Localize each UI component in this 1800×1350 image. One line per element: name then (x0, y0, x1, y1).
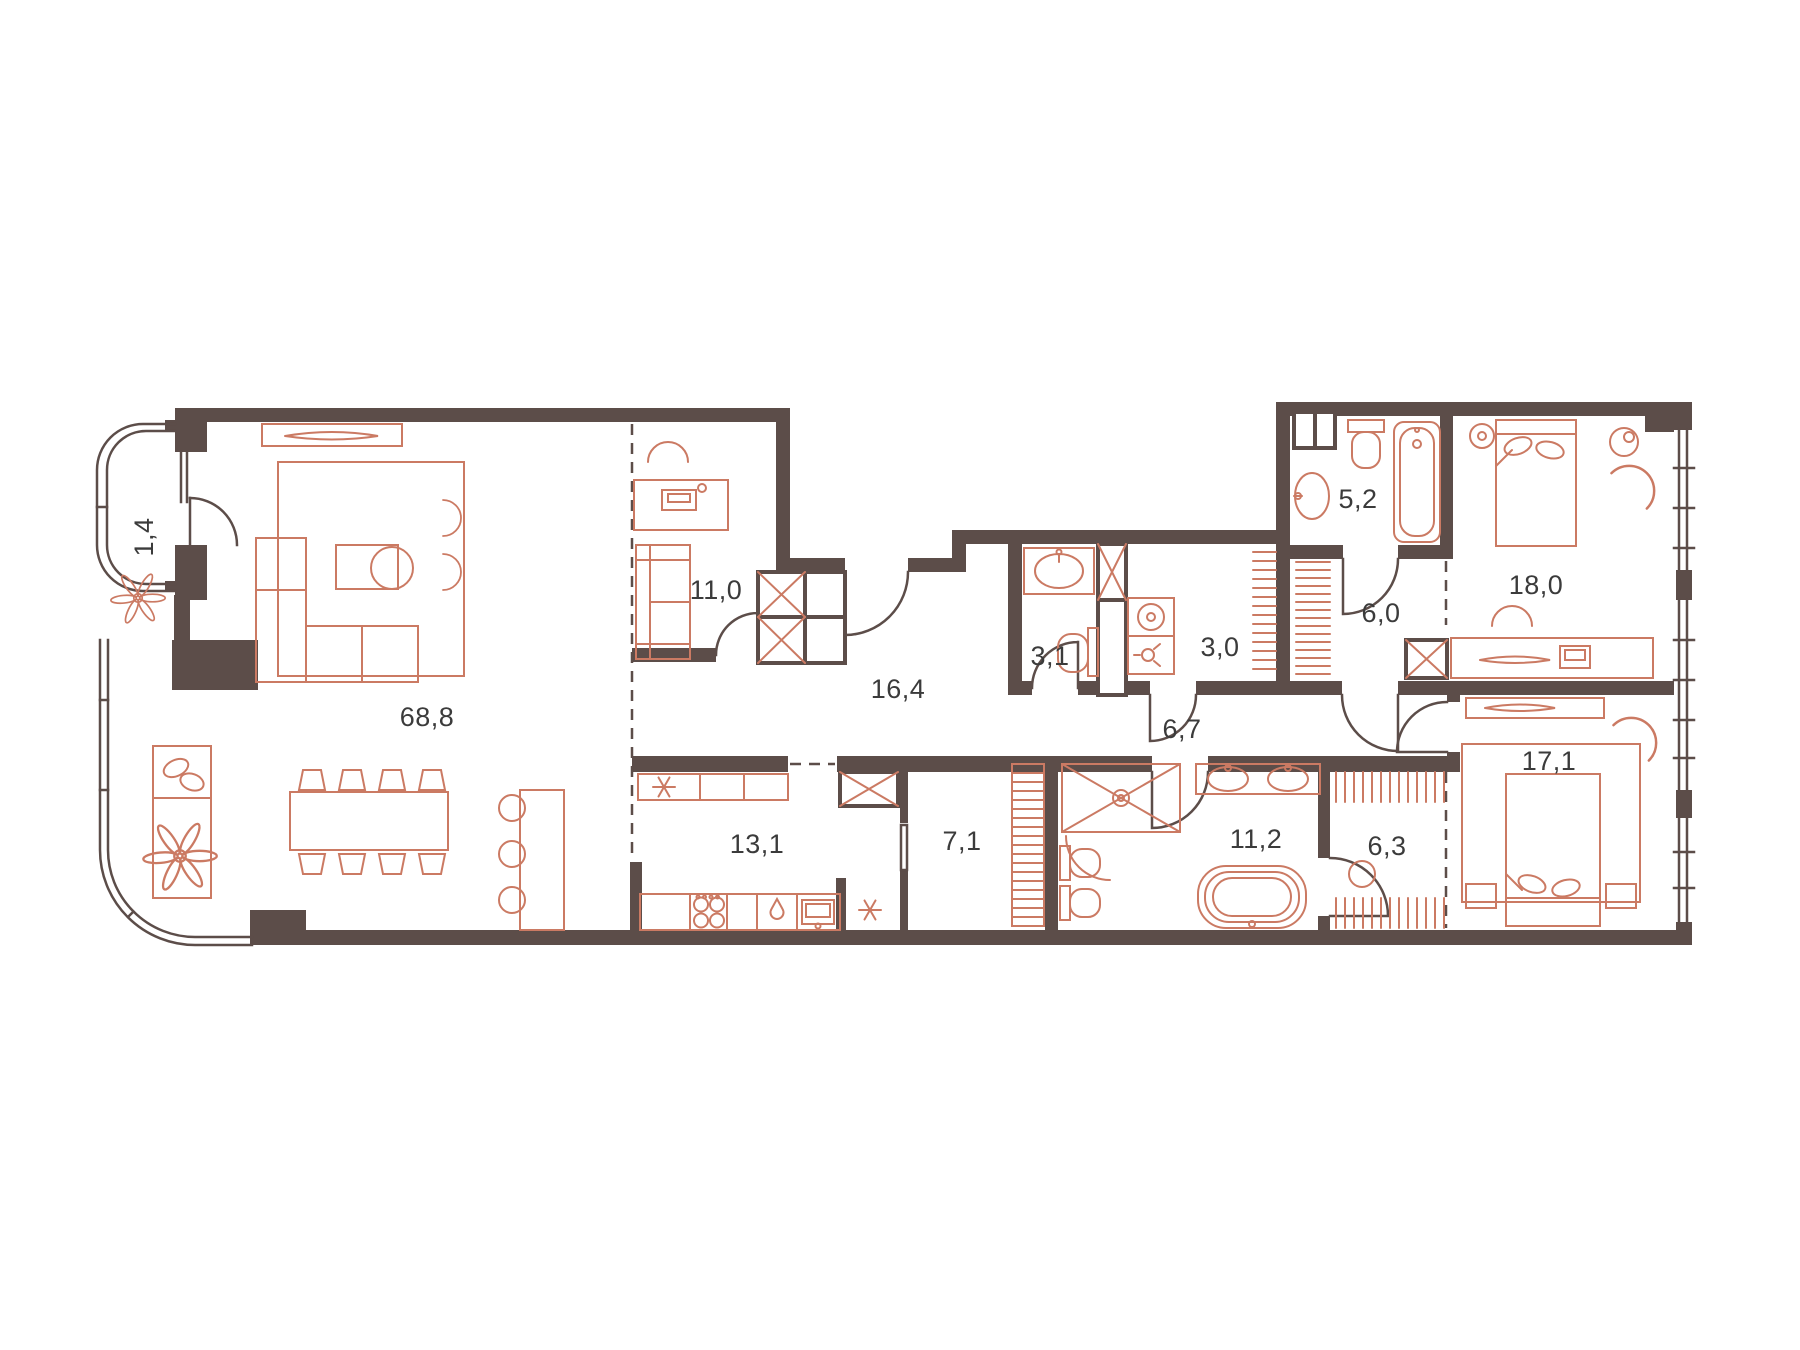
room-label-entrance-hall: 16,4 (871, 674, 926, 704)
room-label-corridor: 6,7 (1162, 714, 1201, 744)
floor-plan-page: 1,4 68,8 11,0 16,4 3,1 3,0 6,7 5,2 6,0 1… (0, 0, 1800, 1350)
hall-door (1342, 695, 1398, 751)
room-label-study: 11,0 (690, 575, 743, 605)
desk-chair (1492, 606, 1532, 626)
room-label-kitchen: 13,1 (730, 829, 785, 859)
kitchen-lower-counter (640, 894, 840, 930)
laundry-shelves (1253, 552, 1276, 669)
room-label-bedroom-1: 18,0 (1509, 570, 1564, 600)
desk (1451, 638, 1653, 678)
desk-chair (648, 442, 688, 462)
study-sofa (636, 545, 690, 659)
room-label-laundry: 3,0 (1200, 632, 1239, 662)
bathroom-sink (1294, 473, 1329, 519)
toilet (1060, 846, 1100, 880)
armchair (1611, 455, 1664, 508)
room-label-bathroom: 5,2 (1338, 484, 1377, 514)
bathroom-toilet (1348, 420, 1384, 468)
pantry-door (901, 825, 907, 870)
daybed (153, 746, 211, 898)
hall-wardrobe (1296, 562, 1330, 674)
kitchen-sink (770, 899, 783, 919)
entry-door (845, 572, 908, 635)
floor-plan-drawing: 1,4 68,8 11,0 16,4 3,1 3,0 6,7 5,2 6,0 1… (0, 0, 1800, 1350)
nightstand (1466, 884, 1496, 908)
nightstand (1606, 884, 1636, 908)
tv-console (1466, 698, 1604, 718)
room-label-wardrobe: 6,3 (1367, 831, 1406, 861)
kitchen-upper-counter (638, 774, 788, 800)
shower (1062, 764, 1180, 880)
coffee-table (336, 545, 413, 589)
freestanding-bathtub (1198, 866, 1306, 928)
dining-table (290, 770, 448, 874)
bathtub (1394, 422, 1440, 542)
side-table (1610, 428, 1638, 456)
wc-sink (1024, 548, 1094, 594)
bed (1506, 774, 1600, 926)
balcony-door (181, 452, 187, 502)
bedroom-2-door (1397, 702, 1447, 752)
room-label-balcony: 1,4 (129, 517, 159, 556)
bidet (1060, 886, 1100, 920)
window-openings (1674, 430, 1694, 922)
room-label-master-bathroom: 11,2 (1230, 824, 1283, 854)
balcony-window (97, 424, 175, 591)
dryer (1128, 636, 1174, 674)
armchair (443, 554, 461, 590)
room-label-hall: 6,0 (1361, 598, 1400, 628)
nightstand (1470, 424, 1494, 448)
plant (111, 573, 166, 625)
room-label-bedroom-2: 17,1 (1522, 746, 1577, 776)
pantry-shelves (1012, 764, 1044, 926)
desk (634, 480, 728, 530)
tv-console (262, 424, 402, 446)
hob-marker (859, 900, 881, 919)
room-label-wc: 3,1 (1030, 641, 1069, 671)
study-door (716, 613, 758, 655)
bed (1496, 420, 1576, 546)
kitchen-island (499, 790, 564, 930)
armchair (443, 500, 461, 536)
room-label-pantry: 7,1 (942, 826, 981, 856)
room-label-living-room: 68,8 (400, 702, 455, 732)
washing-machine (1128, 598, 1174, 636)
